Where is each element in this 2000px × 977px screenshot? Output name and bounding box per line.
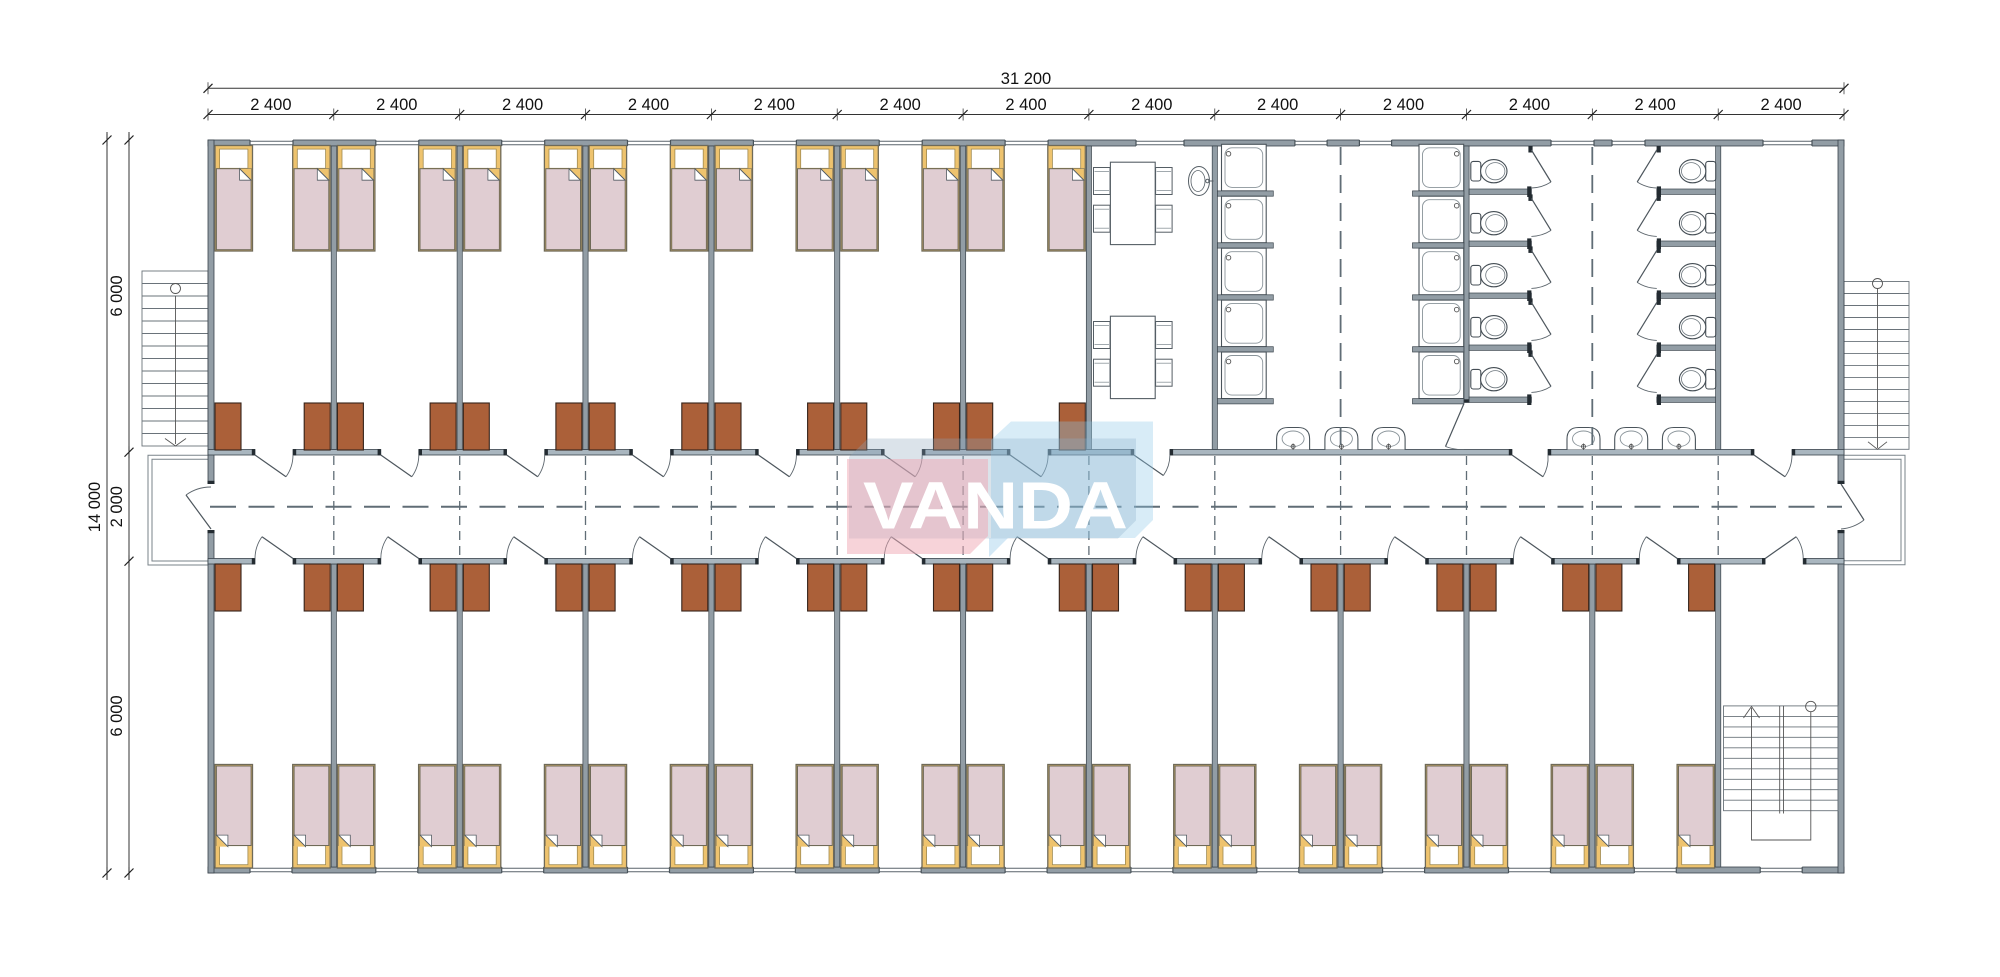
svg-text:6 000: 6 000 (108, 275, 126, 316)
svg-text:2 400: 2 400 (628, 96, 669, 114)
svg-text:2 400: 2 400 (1383, 96, 1424, 114)
svg-text:14 000: 14 000 (86, 482, 104, 532)
svg-text:2 400: 2 400 (754, 96, 795, 114)
svg-text:2 400: 2 400 (1257, 96, 1298, 114)
svg-text:2 400: 2 400 (1131, 96, 1172, 114)
svg-text:2 000: 2 000 (108, 486, 126, 527)
svg-text:6 000: 6 000 (108, 695, 126, 736)
svg-text:2 400: 2 400 (1760, 96, 1801, 114)
svg-text:2 400: 2 400 (880, 96, 921, 114)
svg-text:2 400: 2 400 (1005, 96, 1046, 114)
svg-text:VANDA: VANDA (863, 469, 1128, 544)
svg-text:2 400: 2 400 (502, 96, 543, 114)
svg-text:31 200: 31 200 (1001, 70, 1051, 88)
svg-text:2 400: 2 400 (376, 96, 417, 114)
svg-text:2 400: 2 400 (1635, 96, 1676, 114)
svg-text:2 400: 2 400 (1509, 96, 1550, 114)
svg-text:2 400: 2 400 (250, 96, 291, 114)
